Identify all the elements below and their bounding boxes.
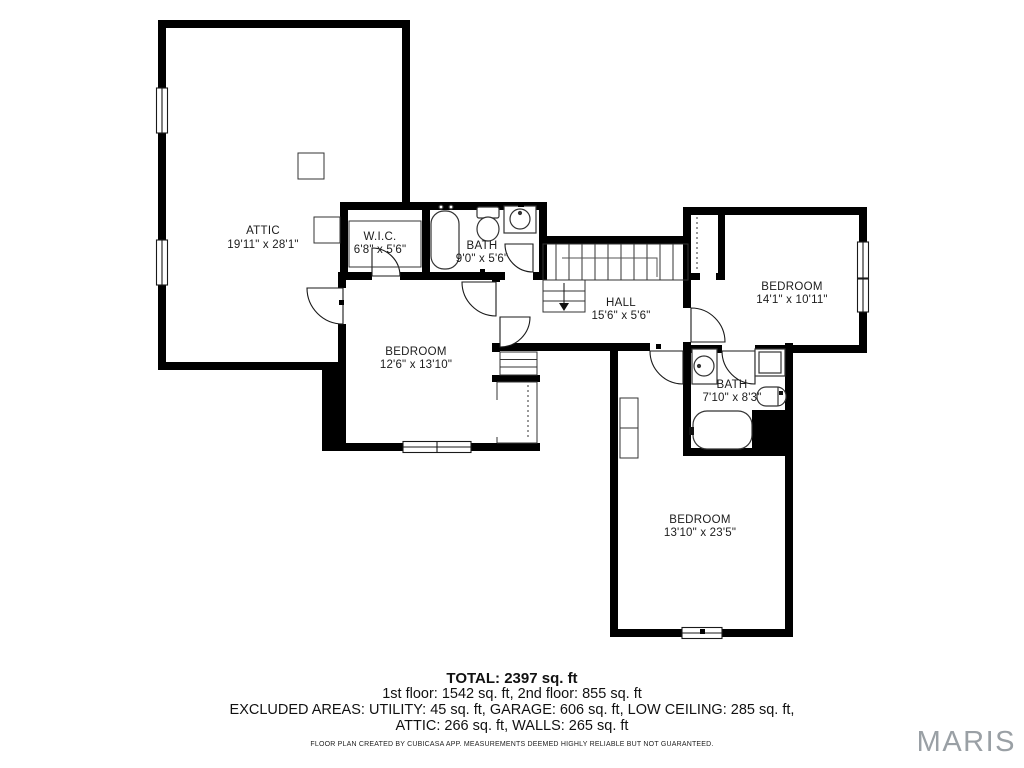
toilet: [477, 207, 499, 241]
wall-segment: [422, 202, 430, 280]
wardrobe-boxes: [620, 398, 638, 458]
wall-segment: [158, 362, 330, 370]
wall-segment: [158, 20, 166, 370]
floor-areas: 1st floor: 1542 sq. ft, 2nd floor: 855 s…: [0, 687, 1024, 703]
wall-segment: [683, 351, 691, 456]
bedroom-closet: [497, 382, 537, 443]
room-label-bedroom-left: BEDROOM 12'6" x 13'10": [380, 346, 452, 371]
wall-segment: [785, 343, 793, 413]
room-dims: 15'6" x 5'6": [591, 310, 650, 322]
room-dims: 14'1" x 10'11": [756, 294, 827, 306]
room-dims: 7'10" x 8'3": [702, 392, 761, 404]
room-dims: 12'6" x 13'10": [380, 359, 452, 371]
disclaimer-text: FLOOR PLAN CREATED BY CUBICASA APP. MEAS…: [0, 741, 1024, 748]
room-name: W.I.C.: [363, 231, 396, 243]
chimney-box: [298, 153, 324, 179]
sink: [692, 349, 717, 384]
wall-segment: [785, 448, 793, 637]
wall-segment: [338, 272, 346, 288]
window: [858, 242, 869, 278]
wall-segment: [683, 207, 691, 308]
door-arc: [307, 288, 343, 324]
wall-segment: [158, 20, 410, 28]
excluded-areas-line1: EXCLUDED AREAS: UTILITY: 45 sq. ft, GARA…: [0, 703, 1024, 719]
wall-segment: [683, 207, 867, 215]
attic-shelf-box: [314, 217, 340, 243]
total-area: TOTAL: 2397 sq. ft: [0, 671, 1024, 687]
room-label-bath-top: BATH 9'0" x 5'6": [456, 240, 508, 265]
room-label-wic: W.I.C. 6'8" x 5'6": [354, 231, 406, 256]
area-summary: TOTAL: 2397 sq. ft 1st floor: 1542 sq. f…: [0, 671, 1024, 748]
excluded-areas-line2: ATTIC: 266 sq. ft, WALLS: 265 sq. ft: [0, 719, 1024, 735]
bathtub: [689, 411, 752, 449]
door-arc: [500, 317, 530, 347]
room-dims: 19'11" x 28'1": [227, 239, 298, 251]
room-name: BEDROOM: [669, 514, 731, 526]
shower: [755, 349, 785, 376]
floor-plan-page: { "rooms": { "attic": {"name": "ATTIC", …: [0, 0, 1024, 768]
wall-segment: [492, 272, 500, 282]
room-name: BEDROOM: [761, 281, 823, 293]
wall-segment: [340, 202, 348, 280]
room-name: ATTIC: [246, 225, 280, 237]
door-arc: [650, 351, 683, 384]
room-label-attic: ATTIC 19'11" x 28'1": [227, 225, 298, 251]
wall-segment: [400, 272, 505, 280]
room-name: BEDROOM: [385, 346, 447, 358]
wall-segment: [492, 375, 540, 382]
room-name: BATH: [716, 379, 747, 391]
hall-closet-shelves: [500, 352, 537, 375]
room-label-bedroom-right: BEDROOM 14'1" x 10'11": [756, 281, 827, 306]
window: [403, 442, 471, 453]
room-dims: 9'0" x 5'6": [456, 253, 508, 265]
room-name: BATH: [466, 240, 497, 252]
room-name: HALL: [606, 297, 636, 309]
wall-segment: [610, 343, 618, 637]
room-label-bedroom-bottom: BEDROOM 13'10" x 23'5": [664, 514, 736, 539]
wall-segment: [543, 236, 690, 244]
wall-segment: [533, 272, 547, 280]
room-label-hall: HALL 15'6" x 5'6": [591, 297, 650, 322]
closets: [298, 153, 725, 458]
room-dims: 6'8" x 5'6": [354, 244, 406, 256]
sink: [504, 206, 536, 233]
room-dims: 13'10" x 23'5": [664, 527, 736, 539]
window: [858, 279, 869, 312]
wall-segment: [402, 20, 410, 210]
window: [157, 88, 168, 133]
door-arc: [505, 244, 533, 272]
wall-segment: [338, 324, 346, 451]
bedroom-right-closet: [691, 215, 725, 280]
door-arc: [691, 308, 725, 342]
maris-logo: MARIS: [917, 726, 1016, 759]
floor-plan-drawing: ATTIC 19'11" x 28'1" W.I.C. 6'8" x 5'6" …: [0, 0, 1024, 768]
window: [157, 240, 168, 285]
door-arc: [462, 282, 496, 316]
stairs-down-arrowhead: [559, 303, 569, 311]
wall-segment: [492, 343, 650, 351]
